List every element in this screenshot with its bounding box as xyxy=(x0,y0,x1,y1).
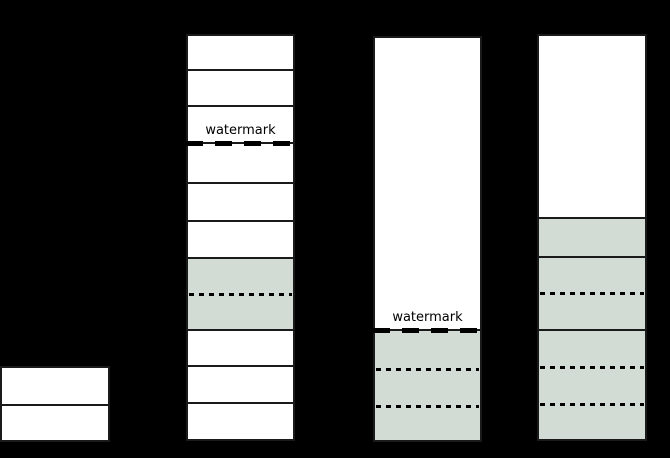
segment xyxy=(0,404,110,442)
segment xyxy=(186,69,295,107)
shaded-segment xyxy=(537,217,647,258)
dotted-line xyxy=(540,292,644,295)
segment xyxy=(186,34,295,71)
dotted-line xyxy=(540,403,644,406)
dotted-line xyxy=(376,405,479,408)
bar-2: watermark xyxy=(186,35,295,442)
segment xyxy=(186,329,295,367)
watermark-label: watermark xyxy=(188,124,293,139)
segment xyxy=(186,182,295,222)
segment xyxy=(0,366,110,406)
bar-4 xyxy=(537,35,647,442)
segment xyxy=(186,142,295,184)
segment xyxy=(537,34,647,219)
shaded-segment xyxy=(186,257,295,331)
shaded-segment xyxy=(537,256,647,331)
dotted-line xyxy=(189,293,292,296)
segment xyxy=(186,220,295,259)
watermark-line xyxy=(373,328,482,333)
dotted-line xyxy=(376,368,479,371)
diagram-stage: watermarkwatermark xyxy=(0,0,670,458)
shaded-segment xyxy=(373,329,482,442)
bar-1 xyxy=(0,367,110,443)
segment: watermark xyxy=(373,36,482,331)
segment xyxy=(186,365,295,404)
segment: watermark xyxy=(186,105,295,144)
dotted-line xyxy=(540,366,644,369)
segment xyxy=(186,402,295,441)
shaded-segment xyxy=(537,329,647,441)
bar-3: watermark xyxy=(373,37,482,443)
watermark-label: watermark xyxy=(375,311,480,326)
watermark-line xyxy=(186,141,295,146)
